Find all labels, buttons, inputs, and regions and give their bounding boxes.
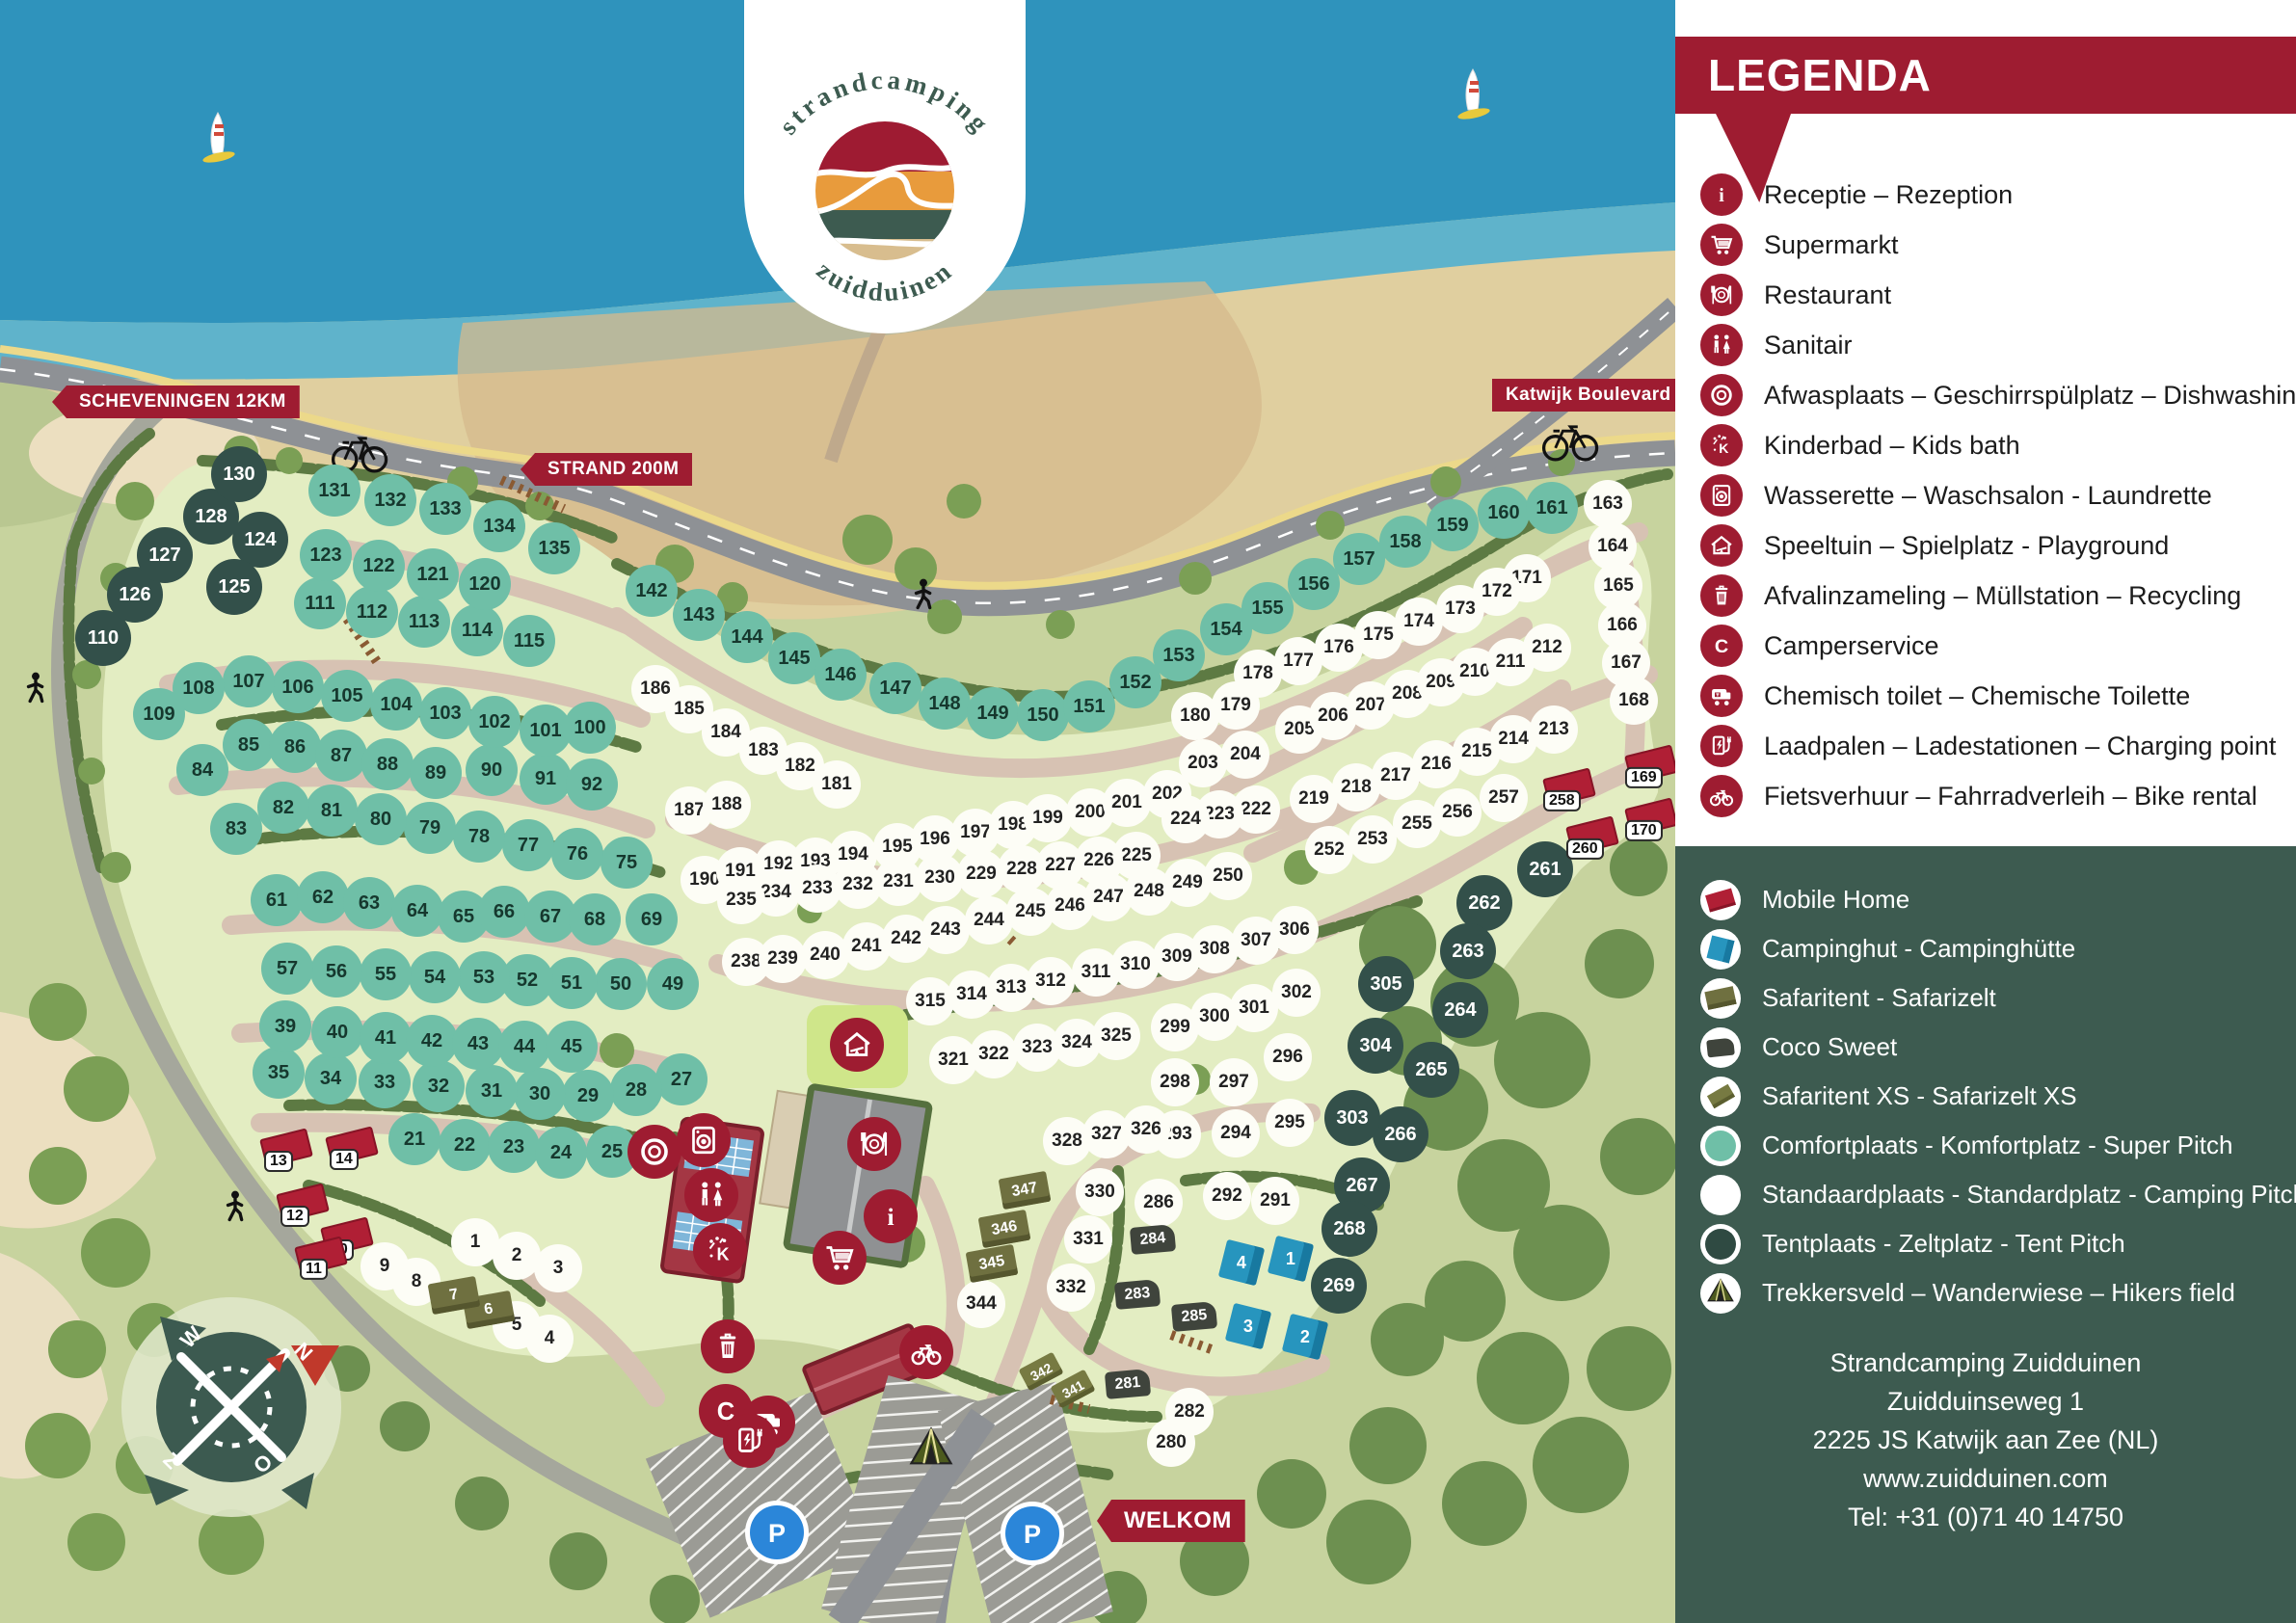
accommodation-item-label: Safaritent - Safarizelt (1762, 983, 1996, 1013)
supermarkt-icon (1700, 224, 1743, 266)
welkom-sign: WELKOM (1097, 1500, 1245, 1542)
accommodation-list: Mobile HomeCampinghut - CampinghütteSafa… (1700, 875, 2288, 1317)
campsite-map-poster: i K C P (0, 0, 2296, 1623)
legend-item-afwasplaats: Afwasplaats – Geschirrspülplatz – Dishwa… (1700, 370, 2288, 420)
standaardplaats-icon (1700, 1175, 1741, 1215)
accommodation-panel: Mobile HomeCampinghut - CampinghütteSafa… (1675, 846, 2296, 1623)
legend-item-label: Kinderbad – Kids bath (1764, 431, 2020, 461)
laadpalen-icon (1700, 725, 1743, 767)
accommodation-item-coco-sweet: Coco Sweet (1700, 1023, 2288, 1072)
legend-item-supermarkt: Supermarkt (1700, 220, 2288, 270)
legend-item-wasserette: Wasserette – Waschsalon - Laundrette (1700, 470, 2288, 520)
safaritent-icon (1700, 978, 1741, 1019)
legend-list: Receptie – RezeptionSupermarktRestaurant… (1700, 170, 2288, 821)
camperservice-icon (1700, 625, 1743, 667)
address-block: Strandcamping ZuidduinenZuidduinseweg 12… (1675, 1344, 2296, 1536)
legend-item-sanitair: Sanitair (1700, 320, 2288, 370)
accommodation-item-comfortplaats: Comfortplaats - Komfortplatz - Super Pit… (1700, 1121, 2288, 1170)
legend-item-label: Wasserette – Waschsalon - Laundrette (1764, 481, 2212, 511)
legend-item-receptie: Receptie – Rezeption (1700, 170, 2288, 220)
accommodation-item-safaritent-xs: Safaritent XS - Safarizelt XS (1700, 1072, 2288, 1121)
legend-item-label: Fietsverhuur – Fahrradverleih – Bike ren… (1764, 782, 2257, 811)
accommodation-item-label: Campinghut - Campinghütte (1762, 934, 2075, 964)
mobile-home-icon (1700, 880, 1741, 920)
accommodation-item-trekkersveld: Trekkersveld – Wanderwiese – Hikers fiel… (1700, 1268, 2288, 1317)
legend-header: LEGENDA (1675, 37, 2296, 114)
chemisch-toilet-icon (1700, 675, 1743, 717)
sanitair-icon (1700, 324, 1743, 366)
afvalinzameling-icon (1700, 574, 1743, 617)
legend-item-afvalinzameling: Afvalinzameling – Müllstation – Recyclin… (1700, 571, 2288, 621)
legend-item-label: Afwasplaats – Geschirrspülplatz – Dishwa… (1764, 381, 2296, 411)
accommodation-item-mobile-home: Mobile Home (1700, 875, 2288, 924)
legend-item-label: Chemisch toilet – Chemische Toilette (1764, 681, 2190, 711)
address-line: Zuidduinseweg 1 (1675, 1382, 2296, 1421)
strand-sign: STRAND 200M (521, 453, 692, 486)
address-line: Strandcamping Zuidduinen (1675, 1344, 2296, 1382)
address-line: 2225 JS Katwijk aan Zee (NL) (1675, 1421, 2296, 1459)
accommodation-item-label: Coco Sweet (1762, 1032, 1897, 1062)
accommodation-item-label: Standaardplaats - Standardplatz - Campin… (1762, 1180, 2296, 1210)
fietsverhuur-icon (1700, 775, 1743, 817)
legend-item-label: Restaurant (1764, 280, 1891, 310)
accommodation-item-label: Comfortplaats - Komfortplatz - Super Pit… (1762, 1131, 2232, 1160)
legend-title: LEGENDA (1675, 49, 1932, 101)
accommodation-item-label: Tentplaats - Zeltplatz - Tent Pitch (1762, 1229, 2125, 1259)
accommodation-item-standaardplaats: Standaardplaats - Standardplatz - Campin… (1700, 1170, 2288, 1219)
legend-item-label: Camperservice (1764, 631, 1939, 661)
kinderbad-icon (1700, 424, 1743, 466)
legend-item-label: Afvalinzameling – Müllstation – Recyclin… (1764, 581, 2241, 611)
legend-item-restaurant: Restaurant (1700, 270, 2288, 320)
legend-item-label: Laadpalen – Ladestationen – Charging poi… (1764, 732, 2276, 761)
afwasplaats-icon (1700, 374, 1743, 416)
receptie-icon (1700, 173, 1743, 216)
legend-item-label: Speeltuin – Spielplatz - Playground (1764, 531, 2169, 561)
legend-item-camperservice: Camperservice (1700, 621, 2288, 671)
scheveningen-sign: SCHEVENINGEN 12KM (52, 386, 300, 418)
wasserette-icon (1700, 474, 1743, 517)
accommodation-item-campinghut: Campinghut - Campinghütte (1700, 924, 2288, 973)
accommodation-item-safaritent: Safaritent - Safarizelt (1700, 973, 2288, 1023)
address-line: Tel: +31 (0)71 40 14750 (1675, 1498, 2296, 1536)
accommodation-item-label: Mobile Home (1762, 885, 1909, 915)
speeltuin-icon (1700, 524, 1743, 567)
info-panel: LEGENDA Receptie – RezeptionSupermarktRe… (1675, 0, 2296, 1623)
legend-item-kinderbad: Kinderbad – Kids bath (1700, 420, 2288, 470)
legend-item-label: Receptie – Rezeption (1764, 180, 2013, 210)
accommodation-item-tentplaats: Tentplaats - Zeltplatz - Tent Pitch (1700, 1219, 2288, 1268)
campinghut-icon (1700, 929, 1741, 970)
legend-item-label: Sanitair (1764, 331, 1853, 360)
legend-item-laadpalen: Laadpalen – Ladestationen – Charging poi… (1700, 721, 2288, 771)
comfortplaats-icon (1700, 1126, 1741, 1166)
safaritent-xs-icon (1700, 1077, 1741, 1117)
address-line: www.zuidduinen.com (1675, 1459, 2296, 1498)
legend-item-label: Supermarkt (1764, 230, 1899, 260)
trekkersveld-icon (1700, 1273, 1741, 1314)
accommodation-item-label: Trekkersveld – Wanderwiese – Hikers fiel… (1762, 1278, 2235, 1308)
accommodation-item-label: Safaritent XS - Safarizelt XS (1762, 1081, 2077, 1111)
tentplaats-icon (1700, 1224, 1741, 1264)
coco-sweet-icon (1700, 1027, 1741, 1068)
restaurant-icon (1700, 274, 1743, 316)
legend-item-speeltuin: Speeltuin – Spielplatz - Playground (1700, 520, 2288, 571)
legend-item-fietsverhuur: Fietsverhuur – Fahrradverleih – Bike ren… (1700, 771, 2288, 821)
logo-banner: strandcamping zuidduinen (742, 0, 1028, 339)
legend-item-chemisch-toilet: Chemisch toilet – Chemische Toilette (1700, 671, 2288, 721)
